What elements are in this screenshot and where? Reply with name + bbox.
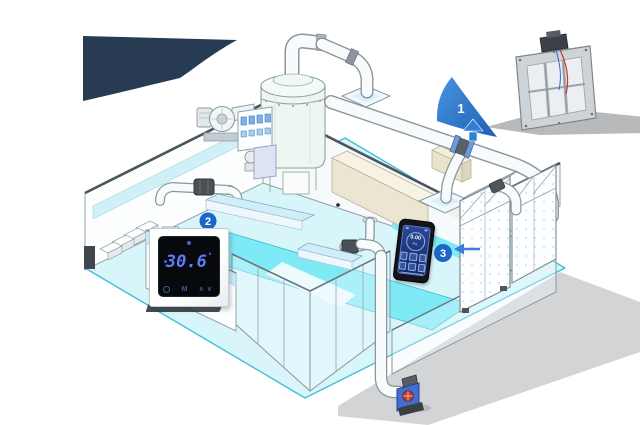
temperature-value: 30.6 (166, 252, 207, 272)
mode-button: M (181, 286, 187, 293)
triangle-icon (402, 273, 406, 277)
illustration-canvas: 1 2 3 30.6° M ∧∨ (0, 0, 640, 425)
pressure-unit: Pa (412, 242, 417, 247)
meter-button (417, 264, 425, 273)
power-icon (163, 286, 170, 293)
isometric-scene: 1 2 3 (0, 0, 640, 425)
damper-inset (516, 30, 596, 130)
exhaust-pipe-stack-run (322, 44, 367, 92)
meter-menu-bar (399, 271, 423, 276)
meter-button (408, 262, 416, 271)
callout-1-number: 1 (457, 101, 464, 116)
meter-button (409, 253, 417, 262)
wifi-icon (187, 241, 191, 245)
control-panel (238, 107, 272, 151)
callout-3-number: 3 (440, 248, 446, 260)
down-button: ∨ (207, 286, 215, 293)
callout-1: 1 (437, 77, 497, 141)
thermostat-screen: 30.6° M ∧∨ (158, 236, 220, 297)
handheld-meter: 0.00 Pa (392, 218, 435, 284)
meter-button (418, 254, 426, 263)
meter-button (400, 251, 408, 260)
damper-actuator-icon (540, 30, 568, 52)
floor-cabinet (254, 145, 276, 179)
doorway-opening (84, 246, 95, 269)
inline-fan-icon (194, 179, 214, 195)
degree-symbol: ° (208, 252, 212, 260)
inline-fan-icon (342, 240, 358, 253)
status-icon-right (424, 229, 427, 231)
status-icon-left (406, 227, 409, 229)
navy-backdrop-wedge (83, 36, 237, 101)
thermostat-panel: 30.6° M ∧∨ (149, 228, 229, 307)
handheld-screen: 0.00 Pa (397, 224, 431, 276)
callout-2-number: 2 (205, 216, 211, 228)
wall-sensor-dot (336, 203, 340, 207)
temperature-display: 30.6° (159, 252, 219, 272)
up-button: ∧ (199, 286, 207, 293)
meter-button (399, 261, 407, 270)
pressure-gauge: 0.00 Pa (405, 231, 426, 252)
